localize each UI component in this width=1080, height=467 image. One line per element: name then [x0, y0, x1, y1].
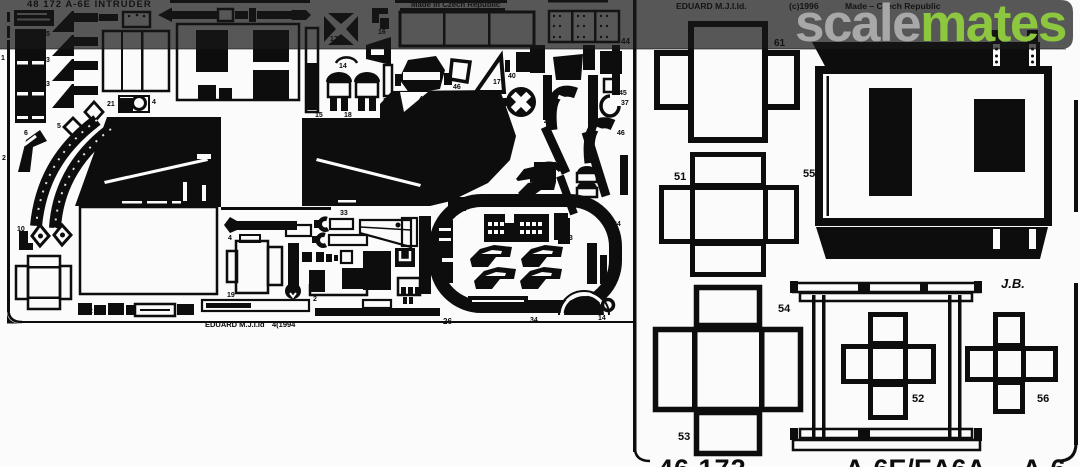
svg-text:53: 53: [678, 431, 690, 443]
svg-text:46 172: 46 172: [658, 454, 747, 467]
svg-text:14: 14: [339, 63, 347, 70]
svg-text:55: 55: [803, 168, 815, 180]
svg-text:23: 23: [565, 235, 573, 242]
svg-text:7: 7: [148, 145, 152, 152]
svg-text:51: 51: [674, 171, 686, 183]
svg-text:27: 27: [372, 251, 380, 258]
svg-text:EDUARD M.J.I.Id: EDUARD M.J.I.Id: [205, 320, 265, 329]
svg-text:54: 54: [778, 303, 791, 315]
svg-text:12: 12: [85, 308, 93, 315]
svg-text:4(1994: 4(1994: [272, 320, 296, 329]
svg-text:46: 46: [617, 130, 625, 137]
svg-text:42: 42: [544, 119, 552, 126]
svg-text:3: 3: [46, 57, 50, 64]
svg-text:26: 26: [443, 317, 452, 326]
svg-text:34: 34: [613, 221, 621, 228]
svg-text:46: 46: [453, 84, 461, 91]
svg-text:scalemates: scalemates: [795, 0, 1066, 53]
svg-text:15: 15: [315, 112, 323, 119]
svg-text:6: 6: [24, 130, 28, 137]
svg-text:A-6E/EA6A: A-6E/EA6A: [845, 454, 986, 467]
svg-text:22: 22: [383, 98, 391, 105]
svg-text:17: 17: [493, 79, 501, 86]
svg-text:18: 18: [344, 112, 352, 119]
svg-text:19: 19: [227, 292, 235, 299]
svg-text:56: 56: [1037, 393, 1049, 405]
svg-text:43: 43: [419, 96, 427, 103]
svg-text:J.B.: J.B.: [1001, 276, 1025, 291]
svg-text:52: 52: [912, 393, 924, 405]
svg-text:34: 34: [530, 317, 538, 324]
svg-text:14: 14: [598, 315, 606, 322]
svg-text:10: 10: [17, 226, 25, 233]
svg-text:2: 2: [313, 296, 317, 303]
svg-text:40: 40: [508, 73, 516, 80]
svg-text:A-6: A-6: [1022, 454, 1066, 467]
svg-text:4: 4: [152, 99, 156, 106]
svg-text:2: 2: [2, 155, 6, 162]
svg-text:45: 45: [619, 90, 627, 97]
svg-text:37: 37: [621, 100, 629, 107]
svg-text:21: 21: [107, 101, 115, 108]
svg-text:5: 5: [57, 123, 61, 130]
svg-text:4: 4: [228, 235, 232, 242]
svg-text:3: 3: [46, 81, 50, 88]
svg-text:33: 33: [340, 210, 348, 217]
svg-text:1: 1: [1, 55, 5, 62]
